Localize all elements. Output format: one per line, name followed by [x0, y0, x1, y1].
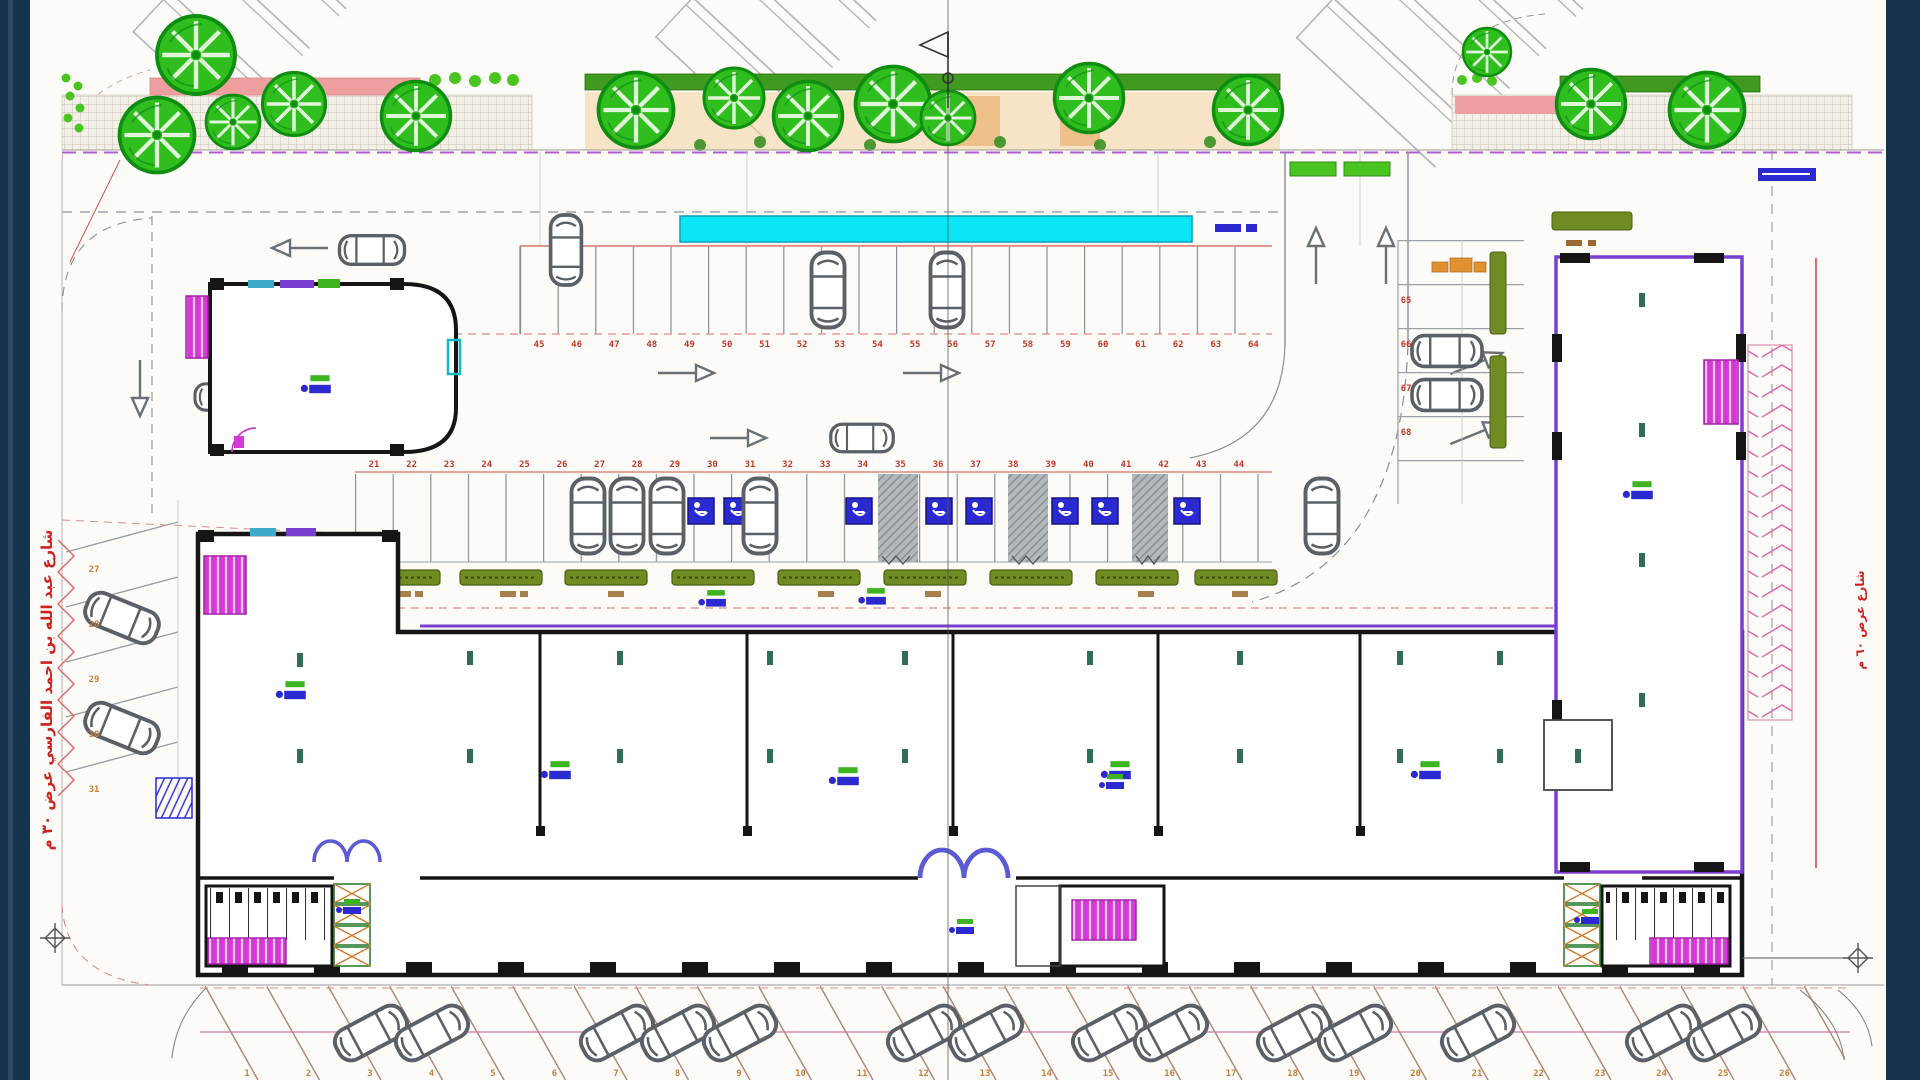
svg-text:26: 26: [557, 460, 568, 470]
svg-text:64: 64: [1248, 340, 1259, 350]
ramp-marker: [156, 778, 192, 818]
right-building: [1544, 253, 1746, 872]
svg-text:68: 68: [1401, 428, 1412, 438]
svg-text:14: 14: [1041, 1069, 1052, 1079]
svg-text:2: 2: [306, 1069, 311, 1079]
parking-row-bottom: [172, 986, 1872, 1080]
svg-text:13: 13: [980, 1069, 991, 1079]
staircase: [1704, 360, 1738, 424]
svg-text:17: 17: [1226, 1069, 1237, 1079]
accessible-parking-icon: [966, 498, 992, 524]
svg-text:21: 21: [1472, 1069, 1483, 1079]
svg-text:62: 62: [1173, 340, 1184, 350]
svg-text:57: 57: [985, 340, 996, 350]
car-icon: [1306, 479, 1339, 554]
car-icon: [931, 253, 964, 328]
svg-text:31: 31: [89, 785, 100, 795]
svg-text:28: 28: [89, 620, 100, 630]
svg-text:4: 4: [429, 1069, 435, 1079]
svg-text:22: 22: [406, 460, 417, 470]
parking-row-middle: [355, 472, 1339, 564]
svg-text:7: 7: [613, 1069, 618, 1079]
tree-icon: [120, 98, 195, 173]
staircase: [208, 938, 286, 964]
blue-dimension-label: [1758, 168, 1816, 181]
svg-text:22: 22: [1533, 1069, 1544, 1079]
svg-text:38: 38: [1008, 460, 1019, 470]
frame-right: [1886, 0, 1920, 1080]
tree-icon: [599, 73, 674, 148]
staircase: [204, 556, 246, 614]
car-icon: [744, 479, 777, 554]
car-icon: [572, 479, 605, 554]
tree-icon: [1670, 73, 1745, 148]
svg-text:1: 1: [244, 1069, 249, 1079]
svg-text:34: 34: [857, 460, 868, 470]
svg-text:40: 40: [1083, 460, 1094, 470]
tree-icon: [206, 95, 260, 149]
tree-icon: [774, 82, 843, 151]
frame-accent: [8, 0, 13, 1080]
svg-text:19: 19: [1349, 1069, 1360, 1079]
svg-text:26: 26: [1779, 1069, 1790, 1079]
tree-icon: [1055, 64, 1124, 133]
svg-text:49: 49: [684, 340, 695, 350]
accessible-parking-icon: [1174, 498, 1200, 524]
svg-text:45: 45: [534, 340, 545, 350]
svg-text:5: 5: [490, 1069, 495, 1079]
svg-text:10: 10: [795, 1069, 806, 1079]
car-icon: [611, 479, 644, 554]
svg-text:23: 23: [444, 460, 455, 470]
svg-text:53: 53: [834, 340, 845, 350]
svg-text:48: 48: [646, 340, 657, 350]
car-icon: [812, 253, 845, 328]
restrooms-left: [206, 886, 332, 966]
car-icon: [551, 215, 582, 285]
svg-text:66: 66: [1401, 340, 1412, 350]
svg-text:15: 15: [1103, 1069, 1114, 1079]
svg-text:56: 56: [947, 340, 958, 350]
staircase: [1650, 938, 1728, 964]
svg-text:25: 25: [519, 460, 530, 470]
accessible-parking-icon: [1052, 498, 1078, 524]
car-icon: [831, 424, 894, 452]
accessible-parking-icon: [1092, 498, 1118, 524]
svg-text:18: 18: [1287, 1069, 1298, 1079]
svg-text:20: 20: [1410, 1069, 1421, 1079]
svg-text:3: 3: [367, 1069, 372, 1079]
tree-icon: [157, 16, 235, 94]
restrooms-right: [1602, 886, 1730, 966]
svg-text:11: 11: [857, 1069, 868, 1079]
svg-text:29: 29: [669, 460, 680, 470]
tree-icon: [1557, 70, 1626, 139]
svg-text:55: 55: [910, 340, 921, 350]
svg-text:30: 30: [707, 460, 718, 470]
svg-text:27: 27: [594, 460, 605, 470]
svg-text:6: 6: [552, 1069, 557, 1079]
staircase: [1072, 900, 1136, 940]
svg-text:30: 30: [89, 730, 100, 740]
svg-text:50: 50: [722, 340, 733, 350]
street-label-left: شارع عبد الله بن احمد الفارسي عرض ٣٠ م: [38, 530, 56, 851]
svg-text:47: 47: [609, 340, 620, 350]
svg-text:25: 25: [1718, 1069, 1729, 1079]
svg-text:28: 28: [632, 460, 643, 470]
svg-text:46: 46: [571, 340, 582, 350]
canopy-bar: [680, 216, 1257, 242]
street-label-right: شارع عرض ٦٠ م: [1853, 570, 1868, 669]
small-building-topleft: [186, 278, 460, 456]
svg-text:32: 32: [782, 460, 793, 470]
svg-text:36: 36: [933, 460, 944, 470]
tree-icon: [1463, 28, 1511, 76]
svg-text:59: 59: [1060, 340, 1071, 350]
tree-icon: [382, 82, 451, 151]
tree-icon: [704, 68, 764, 128]
svg-text:65: 65: [1401, 296, 1412, 306]
svg-text:29: 29: [89, 675, 100, 685]
svg-text:54: 54: [872, 340, 883, 350]
svg-text:67: 67: [1401, 384, 1412, 394]
tree-icon: [263, 73, 326, 136]
svg-text:61: 61: [1135, 340, 1146, 350]
svg-text:51: 51: [759, 340, 770, 350]
svg-text:24: 24: [1656, 1069, 1667, 1079]
svg-text:31: 31: [745, 460, 756, 470]
svg-text:41: 41: [1121, 460, 1132, 470]
svg-text:44: 44: [1233, 460, 1244, 470]
svg-text:42: 42: [1158, 460, 1169, 470]
svg-text:9: 9: [736, 1069, 741, 1079]
frame-left: [0, 0, 30, 1080]
staircase: [186, 296, 208, 358]
svg-text:24: 24: [481, 460, 492, 470]
svg-text:27: 27: [89, 565, 100, 575]
svg-text:16: 16: [1164, 1069, 1175, 1079]
svg-text:33: 33: [820, 460, 831, 470]
car-icon: [1412, 336, 1482, 367]
svg-text:21: 21: [369, 460, 380, 470]
car-icon: [340, 236, 405, 265]
accessible-parking-icon: [688, 498, 714, 524]
svg-text:8: 8: [675, 1069, 680, 1079]
svg-text:58: 58: [1022, 340, 1033, 350]
svg-text:60: 60: [1098, 340, 1109, 350]
column-blocks: [222, 962, 1726, 974]
svg-text:52: 52: [797, 340, 808, 350]
svg-text:23: 23: [1595, 1069, 1606, 1079]
svg-text:37: 37: [970, 460, 981, 470]
site-plan-drawing: 4546474849505152535455565758596061626364: [0, 0, 1920, 1080]
tree-icon: [856, 67, 931, 142]
accessible-parking-icon: [846, 498, 872, 524]
svg-text:12: 12: [918, 1069, 929, 1079]
tree-icon: [1214, 76, 1283, 145]
svg-text:39: 39: [1045, 460, 1056, 470]
car-icon: [651, 479, 684, 554]
car-icon: [1412, 380, 1482, 411]
svg-text:43: 43: [1196, 460, 1207, 470]
svg-text:63: 63: [1210, 340, 1221, 350]
svg-text:35: 35: [895, 460, 906, 470]
